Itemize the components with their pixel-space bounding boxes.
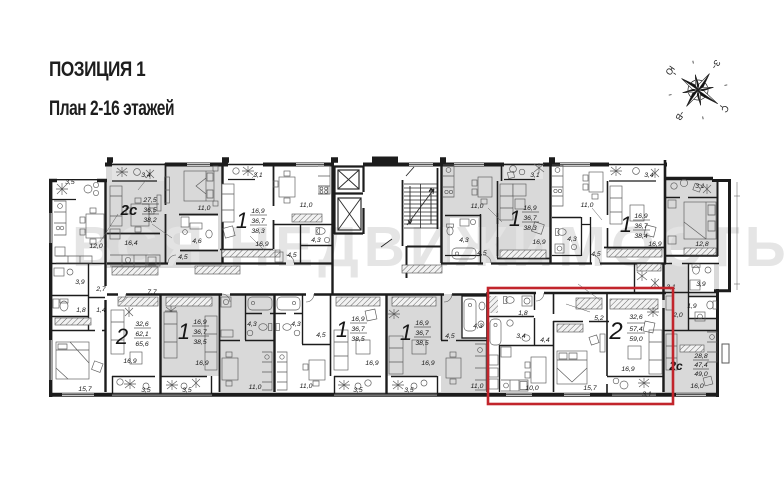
svg-text:36,7: 36,7 xyxy=(193,329,206,336)
svg-text:3,4: 3,4 xyxy=(516,333,526,340)
svg-text:12,8: 12,8 xyxy=(695,241,708,248)
svg-text:49,0: 49,0 xyxy=(694,371,707,378)
svg-text:38,4: 38,4 xyxy=(634,233,647,240)
svg-text:28,8: 28,8 xyxy=(693,353,707,360)
svg-text:16,0: 16,0 xyxy=(690,383,703,390)
svg-text:62,1: 62,1 xyxy=(135,331,148,338)
svg-text:16,9: 16,9 xyxy=(421,360,434,367)
svg-text:1,8: 1,8 xyxy=(76,307,86,314)
svg-text:3,1: 3,1 xyxy=(253,172,263,179)
svg-text:2с: 2с xyxy=(120,202,138,219)
svg-text:47,4: 47,4 xyxy=(694,362,707,369)
svg-text:4,3: 4,3 xyxy=(459,237,469,244)
svg-text:32,6: 32,6 xyxy=(135,321,148,328)
svg-text:3,5: 3,5 xyxy=(182,387,192,394)
svg-text:2,7: 2,7 xyxy=(95,286,106,293)
svg-text:16,4: 16,4 xyxy=(124,240,137,247)
svg-text:15,7: 15,7 xyxy=(583,385,596,392)
svg-text:В: В xyxy=(673,112,685,123)
svg-text:З: З xyxy=(711,58,722,68)
svg-text:3,9: 3,9 xyxy=(75,279,85,286)
svg-text:3,4: 3,4 xyxy=(644,172,654,179)
svg-text:57,4: 57,4 xyxy=(629,326,642,333)
svg-text:27,5: 27,5 xyxy=(142,197,156,204)
svg-text:1: 1 xyxy=(336,317,348,342)
svg-text:3,1: 3,1 xyxy=(530,172,540,179)
svg-text:36,7: 36,7 xyxy=(634,223,647,230)
svg-text:36,7: 36,7 xyxy=(523,215,536,222)
svg-text:1: 1 xyxy=(178,319,190,344)
svg-text:4,5: 4,5 xyxy=(477,250,487,257)
svg-text:16,9: 16,9 xyxy=(123,358,136,365)
svg-text:16,9: 16,9 xyxy=(195,360,208,367)
svg-text:3,5: 3,5 xyxy=(141,387,151,394)
svg-text:3,1: 3,1 xyxy=(695,183,705,190)
svg-text:16,9: 16,9 xyxy=(523,205,536,212)
svg-text:36,7: 36,7 xyxy=(415,330,428,337)
svg-text:1,4: 1,4 xyxy=(96,307,106,314)
svg-text:36,5: 36,5 xyxy=(143,207,156,214)
svg-text:1: 1 xyxy=(509,206,521,231)
svg-text:11,0: 11,0 xyxy=(249,384,262,391)
svg-text:4,5: 4,5 xyxy=(445,333,455,340)
svg-text:4,3: 4,3 xyxy=(567,236,577,243)
svg-text:4,3: 4,3 xyxy=(473,323,483,330)
svg-text:65,6: 65,6 xyxy=(135,341,148,348)
svg-text:16,9: 16,9 xyxy=(532,239,545,246)
svg-text:16,9: 16,9 xyxy=(251,208,264,215)
svg-text:16,9: 16,9 xyxy=(415,320,428,327)
svg-text:59,0: 59,0 xyxy=(629,336,642,343)
svg-text:1: 1 xyxy=(620,212,632,237)
svg-text:2: 2 xyxy=(608,318,622,345)
svg-text:1,8: 1,8 xyxy=(518,310,528,317)
svg-text:38,3: 38,3 xyxy=(523,225,536,232)
svg-text:16,9: 16,9 xyxy=(648,241,661,248)
svg-text:38,2: 38,2 xyxy=(143,217,156,224)
svg-text:16,9: 16,9 xyxy=(634,213,647,220)
svg-text:3,5: 3,5 xyxy=(404,387,414,394)
svg-text:4,3: 4,3 xyxy=(247,321,257,328)
svg-text:11,0: 11,0 xyxy=(300,202,313,209)
svg-text:3,4: 3,4 xyxy=(141,172,151,179)
svg-text:1,9: 1,9 xyxy=(687,303,697,310)
svg-text:4,5: 4,5 xyxy=(591,251,601,258)
svg-text:1: 1 xyxy=(400,320,412,345)
svg-text:2: 2 xyxy=(115,324,128,349)
svg-text:32,6: 32,6 xyxy=(629,314,642,321)
svg-text:16,9: 16,9 xyxy=(255,241,268,248)
svg-text:3,9: 3,9 xyxy=(696,281,706,288)
svg-text:3,5: 3,5 xyxy=(353,387,363,394)
svg-text:16,9: 16,9 xyxy=(193,319,206,326)
svg-text:4,5: 4,5 xyxy=(316,332,326,339)
svg-text:38,5: 38,5 xyxy=(193,339,206,346)
svg-text:1: 1 xyxy=(236,208,248,233)
svg-text:5,2: 5,2 xyxy=(594,315,604,322)
svg-text:11,0: 11,0 xyxy=(198,205,211,212)
svg-text:4,6: 4,6 xyxy=(192,238,202,245)
svg-text:4,3: 4,3 xyxy=(311,237,321,244)
svg-text:10,0: 10,0 xyxy=(525,385,538,392)
svg-text:С: С xyxy=(719,103,731,114)
svg-text:12,0: 12,0 xyxy=(89,243,102,250)
svg-text:4,4: 4,4 xyxy=(540,337,550,344)
svg-text:15,7: 15,7 xyxy=(78,386,91,393)
svg-text:Ю: Ю xyxy=(663,64,676,77)
svg-text:36,7: 36,7 xyxy=(351,326,364,333)
svg-text:38,5: 38,5 xyxy=(415,340,428,347)
svg-text:16,9: 16,9 xyxy=(365,360,378,367)
svg-text:16,9: 16,9 xyxy=(621,366,634,373)
svg-text:3,5: 3,5 xyxy=(65,179,75,186)
svg-text:11,0: 11,0 xyxy=(300,383,313,390)
svg-text:2с: 2с xyxy=(668,359,683,373)
svg-text:4,5: 4,5 xyxy=(178,254,188,261)
svg-text:7,7: 7,7 xyxy=(147,289,157,296)
svg-text:38,3: 38,3 xyxy=(251,228,264,235)
svg-text:16,9: 16,9 xyxy=(351,316,364,323)
svg-text:3,1: 3,1 xyxy=(642,391,652,398)
svg-text:4,3: 4,3 xyxy=(291,321,301,328)
svg-text:11,0: 11,0 xyxy=(471,383,484,390)
svg-text:4,5: 4,5 xyxy=(287,252,297,259)
svg-text:36,7: 36,7 xyxy=(251,218,264,225)
svg-text:38,5: 38,5 xyxy=(351,336,364,343)
svg-text:11,0: 11,0 xyxy=(471,203,484,210)
svg-text:11,0: 11,0 xyxy=(581,202,594,209)
